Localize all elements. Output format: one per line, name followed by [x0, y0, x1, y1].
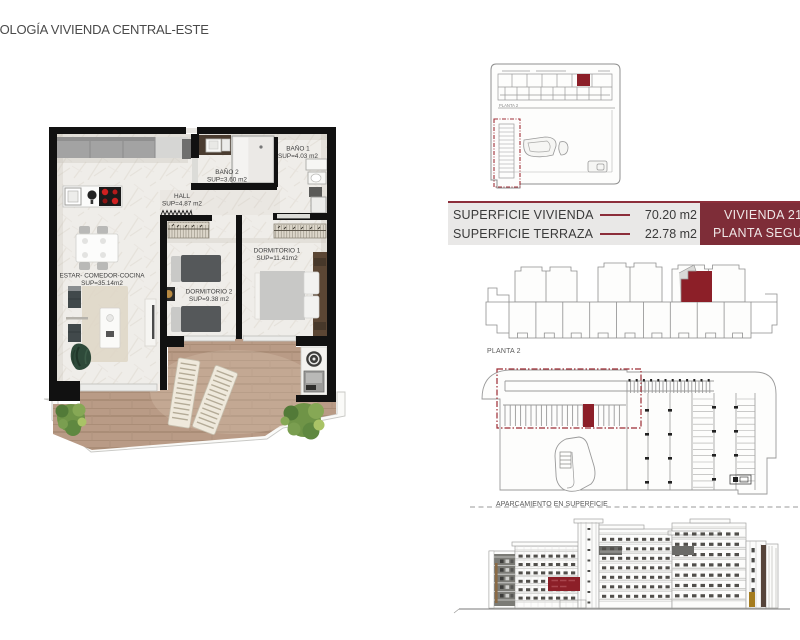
svg-text:SUP=11.41m2: SUP=11.41m2 [256, 255, 298, 262]
svg-text:DORMITORIO 2: DORMITORIO 2 [186, 289, 233, 296]
svg-text:SUP=4.03 m2: SUP=4.03 m2 [278, 153, 318, 160]
svg-text:APARCAMIENTO EN SUPERFICIE: APARCAMIENTO EN SUPERFICIE [496, 501, 608, 508]
svg-text:HALL: HALL [174, 193, 190, 200]
svg-text:SUP=35.14m2: SUP=35.14m2 [81, 280, 123, 287]
svg-text:DORMITORIO 1: DORMITORIO 1 [254, 248, 301, 255]
svg-text:ESTAR- COMEDOR-COCINA: ESTAR- COMEDOR-COCINA [59, 273, 145, 280]
svg-text:BAÑO 2: BAÑO 2 [215, 167, 239, 176]
svg-text:BAÑO 1: BAÑO 1 [286, 144, 310, 153]
svg-text:SUP=4.87 m2: SUP=4.87 m2 [162, 201, 202, 208]
svg-text:SUP=9.38 m2: SUP=9.38 m2 [189, 296, 229, 303]
svg-text:PLANTA 2: PLANTA 2 [487, 348, 521, 355]
svg-text:PLANTA 2: PLANTA 2 [499, 103, 519, 108]
svg-text:SUP=3.60 m2: SUP=3.60 m2 [207, 177, 247, 184]
